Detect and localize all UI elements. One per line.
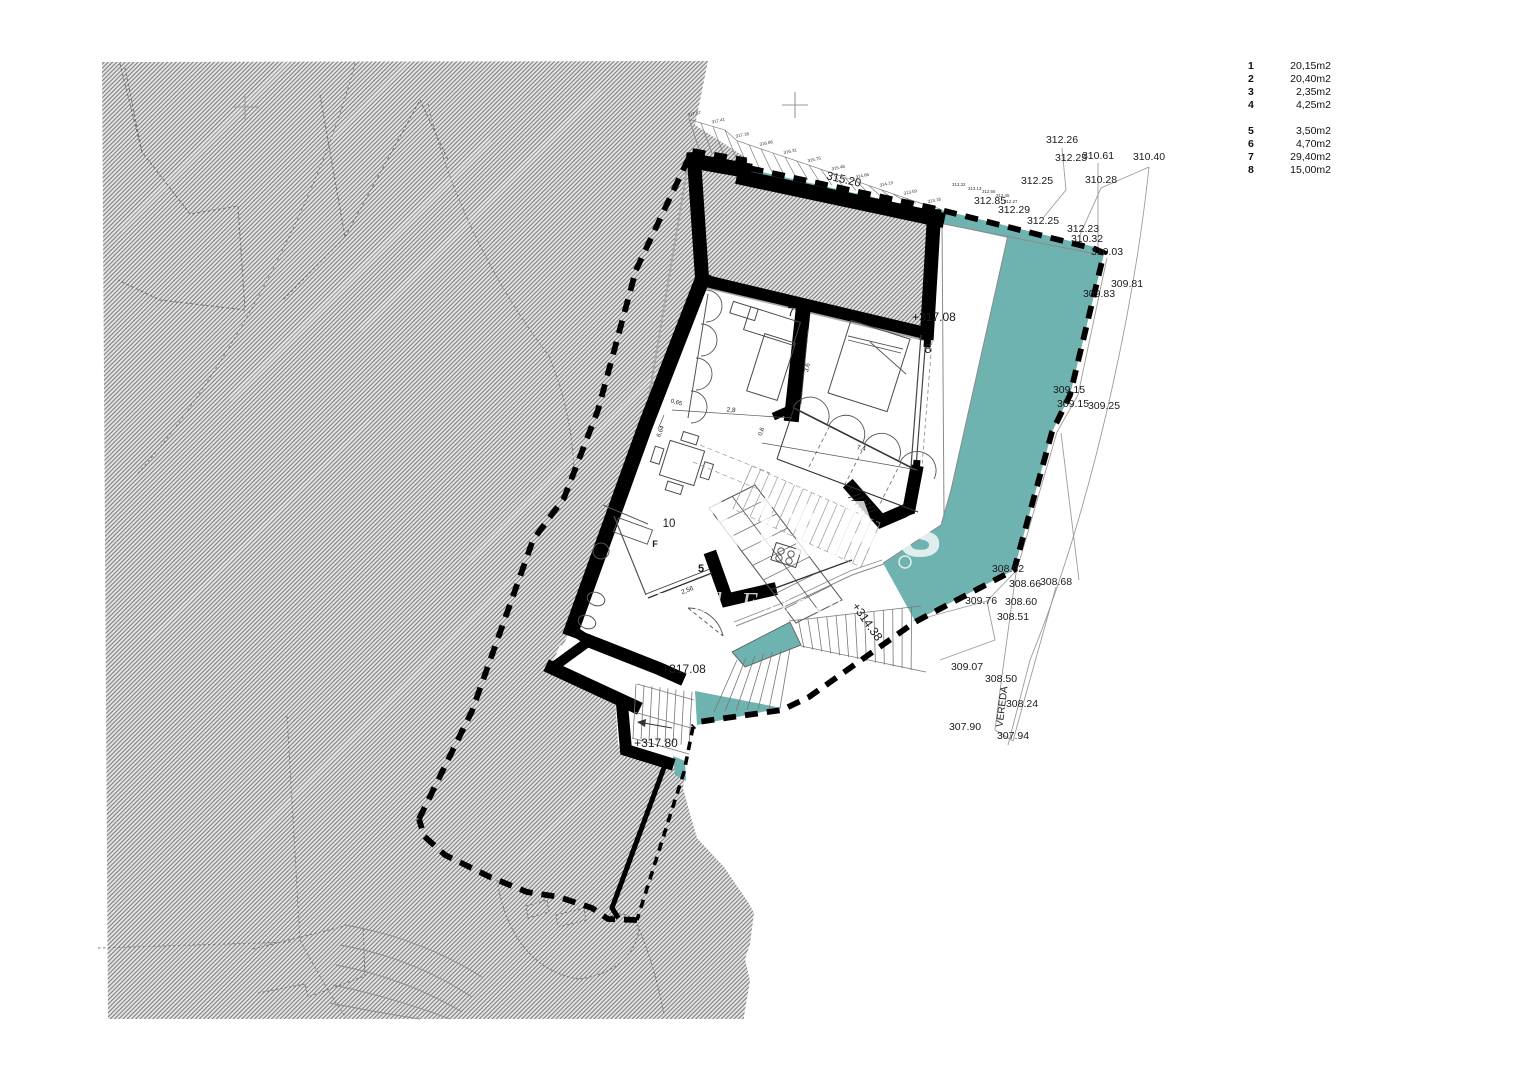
svg-text:312.66: 312.66 — [982, 189, 996, 194]
svg-text:308.82: 308.82 — [992, 563, 1024, 575]
svg-text:307.94: 307.94 — [997, 730, 1029, 742]
svg-text:309.83: 309.83 — [1083, 288, 1115, 300]
svg-text:312.29: 312.29 — [998, 204, 1030, 216]
svg-text:310.03: 310.03 — [1091, 246, 1123, 258]
svg-text:312.25: 312.25 — [1027, 215, 1059, 227]
svg-text:312.25: 312.25 — [1021, 175, 1053, 187]
svg-text:2,8: 2,8 — [726, 407, 736, 415]
svg-text:+317.08: +317.08 — [662, 662, 706, 676]
svg-text:3,50m2: 3,50m2 — [1296, 125, 1331, 137]
svg-text:307.90: 307.90 — [949, 721, 981, 733]
svg-text:308.68: 308.68 — [1040, 576, 1072, 588]
svg-text:309.07: 309.07 — [951, 661, 983, 673]
svg-text:15,00m2: 15,00m2 — [1290, 164, 1331, 176]
svg-text:20,40m2: 20,40m2 — [1290, 73, 1331, 85]
svg-text:29,40m2: 29,40m2 — [1290, 151, 1331, 163]
svg-text:309.15: 309.15 — [1057, 398, 1089, 410]
svg-text:308.60: 308.60 — [1005, 596, 1037, 608]
svg-text:310.40: 310.40 — [1133, 151, 1165, 163]
svg-text:4,70m2: 4,70m2 — [1296, 138, 1331, 150]
svg-text:313.13: 313.13 — [968, 186, 982, 191]
svg-text:308.24: 308.24 — [1006, 698, 1038, 710]
svg-text:20,15m2: 20,15m2 — [1290, 60, 1331, 72]
svg-text:310.32: 310.32 — [1071, 233, 1103, 245]
svg-text:5: 5 — [698, 563, 704, 575]
svg-text:308.66: 308.66 — [1009, 578, 1041, 590]
svg-text:2,35m2: 2,35m2 — [1296, 86, 1331, 98]
svg-text:3: 3 — [1248, 86, 1254, 98]
svg-text:8: 8 — [1248, 164, 1254, 176]
svg-text:10: 10 — [663, 518, 676, 530]
svg-text:AltAs: AltAs — [686, 484, 955, 573]
svg-text:F: F — [652, 539, 658, 549]
svg-text:313.32: 313.32 — [952, 182, 966, 187]
svg-text:4: 4 — [1248, 99, 1254, 111]
svg-text:7: 7 — [1248, 151, 1254, 163]
svg-text:310.28: 310.28 — [1085, 174, 1117, 186]
svg-text:308.50: 308.50 — [985, 673, 1017, 685]
svg-text:1: 1 — [1248, 60, 1254, 72]
svg-text:308.51: 308.51 — [997, 611, 1029, 623]
svg-text:5: 5 — [1248, 125, 1254, 137]
svg-text:4,25m2: 4,25m2 — [1296, 99, 1331, 111]
svg-text:2: 2 — [1248, 73, 1254, 85]
svg-text:310.61: 310.61 — [1082, 150, 1114, 162]
svg-text:309.76: 309.76 — [965, 595, 997, 607]
svg-text:7: 7 — [787, 304, 794, 319]
svg-text:+317.08: +317.08 — [912, 310, 956, 324]
svg-text:6: 6 — [1248, 138, 1254, 150]
svg-text:+317.80: +317.80 — [634, 736, 678, 750]
svg-text:312.26: 312.26 — [1046, 134, 1078, 146]
svg-text:309.15: 309.15 — [1053, 384, 1085, 396]
svg-text:309.81: 309.81 — [1111, 278, 1143, 290]
svg-text:309.25: 309.25 — [1088, 400, 1120, 412]
svg-text:8: 8 — [924, 341, 931, 356]
